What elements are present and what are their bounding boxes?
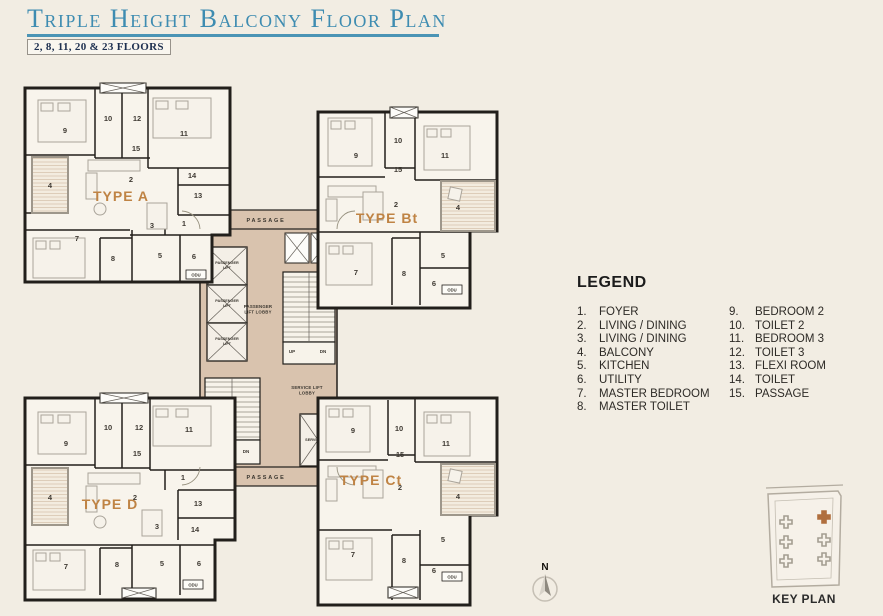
- unit-type-label: TYPE Ct: [340, 472, 402, 488]
- room-number: 15: [133, 449, 141, 458]
- legend-item: 3.LIVING / DINING: [577, 333, 729, 347]
- legend-item: 2.LIVING / DINING: [577, 320, 729, 334]
- unit-type-label: TYPE A: [93, 188, 149, 204]
- legend-column-2: 9.BEDROOM 210.TOILET 211.BEDROOM 312.TOI…: [729, 306, 826, 415]
- room-number: 2: [394, 200, 398, 209]
- north-label: N: [541, 562, 548, 573]
- legend-item: 6.UTILITY: [577, 374, 729, 388]
- dn-label: DN: [243, 449, 250, 454]
- room-number: 6: [192, 252, 196, 261]
- wing-type-a: ODU: [25, 83, 230, 282]
- room-number: 13: [194, 499, 202, 508]
- room-number: 15: [396, 450, 404, 459]
- room-number: 1: [181, 473, 185, 482]
- key-plan-caption: KEY PLAN: [752, 592, 856, 606]
- legend-item: 5.KITCHEN: [577, 360, 729, 374]
- north-arrow: N: [533, 562, 557, 601]
- legend-item: 1.FOYER: [577, 306, 729, 320]
- room-number: 11: [441, 151, 449, 160]
- room-number: 10: [104, 423, 112, 432]
- legend-item: 13.FLEXI ROOM: [729, 360, 826, 374]
- room-number: 7: [75, 234, 79, 243]
- legend-item: 15.PASSAGE: [729, 388, 826, 402]
- room-number: 7: [64, 562, 68, 571]
- room-number: 10: [394, 136, 402, 145]
- room-number: 12: [135, 423, 143, 432]
- room-number: 3: [155, 522, 159, 531]
- floor-plan-page: Triple Height Balcony Floor Plan 2, 8, 1…: [0, 0, 883, 616]
- room-number: 9: [64, 439, 68, 448]
- room-number: 6: [197, 559, 201, 568]
- up-label: UP: [289, 349, 295, 354]
- room-number: 6: [432, 566, 436, 575]
- odu-label: ODU: [447, 288, 456, 293]
- legend-column-1: 1.FOYER2.LIVING / DINING3.LIVING / DININ…: [577, 306, 729, 415]
- odu-label: ODU: [447, 575, 456, 580]
- legend-item: 10.TOILET 2: [729, 320, 826, 334]
- room-number: 15: [132, 144, 140, 153]
- room-number: 9: [351, 426, 355, 435]
- dn-label: DN: [320, 349, 327, 354]
- room-number: 8: [111, 254, 115, 263]
- duct-shaft: [100, 83, 146, 93]
- room-number: 13: [194, 191, 202, 200]
- room-number: 15: [394, 165, 402, 174]
- balcony-area: [441, 181, 495, 231]
- room-number: 7: [354, 268, 358, 277]
- legend-heading: LEGEND: [577, 274, 867, 292]
- room-number: 5: [441, 251, 445, 260]
- room-number: 11: [442, 439, 450, 448]
- balcony-area: [441, 464, 495, 515]
- room-number: 11: [185, 425, 193, 434]
- legend-item: 12.TOILET 3: [729, 347, 826, 361]
- room-number: 3: [150, 221, 154, 230]
- room-number: 5: [158, 251, 162, 260]
- room-number: 14: [191, 525, 200, 534]
- room-number: 2: [133, 493, 137, 502]
- legend-item: 9.BEDROOM 2: [729, 306, 826, 320]
- room-number: 5: [441, 535, 445, 544]
- room-number: 12: [133, 114, 141, 123]
- key-plan-map: [766, 485, 843, 587]
- room-number: 14: [188, 171, 197, 180]
- legend-item: 8.MASTER TOILET: [577, 401, 729, 415]
- unit-type-label: TYPE D: [82, 496, 139, 512]
- room-number: 9: [63, 126, 67, 135]
- passenger-lift-lobby-label: PASSENGERLIFT LOBBY: [244, 304, 273, 314]
- duct-shaft: [390, 107, 418, 118]
- room-number: 8: [402, 269, 406, 278]
- room-number: 5: [160, 559, 164, 568]
- passage-top-label: PASSAGE: [246, 218, 285, 224]
- passage-bottom-label: PASSAGE: [246, 475, 285, 481]
- legend-item: 4.BALCONY: [577, 347, 729, 361]
- unit-type-label: TYPE Bt: [356, 210, 418, 226]
- room-number: 1: [182, 219, 186, 228]
- room-number: 2: [398, 483, 402, 492]
- room-number: 11: [180, 129, 188, 138]
- legend-item: 11.BEDROOM 3: [729, 333, 826, 347]
- duct-shaft: [388, 587, 418, 598]
- room-number: 6: [432, 279, 436, 288]
- room-number: 8: [115, 560, 119, 569]
- legend-item: 14.TOILET: [729, 374, 826, 388]
- room-number: 9: [354, 151, 358, 160]
- room-number: 7: [351, 550, 355, 559]
- wing-type-bt: ODU: [318, 107, 497, 308]
- legend: LEGEND 1.FOYER2.LIVING / DINING3.LIVING …: [577, 274, 867, 415]
- odu-label: ODU: [188, 583, 197, 588]
- room-number: 8: [402, 556, 406, 565]
- room-number: 2: [129, 175, 133, 184]
- room-number: 10: [395, 424, 403, 433]
- room-number: 10: [104, 114, 112, 123]
- odu-label: ODU: [191, 273, 200, 278]
- legend-item: 7.MASTER BEDROOM: [577, 388, 729, 402]
- wing-type-ct: ODU: [318, 398, 497, 605]
